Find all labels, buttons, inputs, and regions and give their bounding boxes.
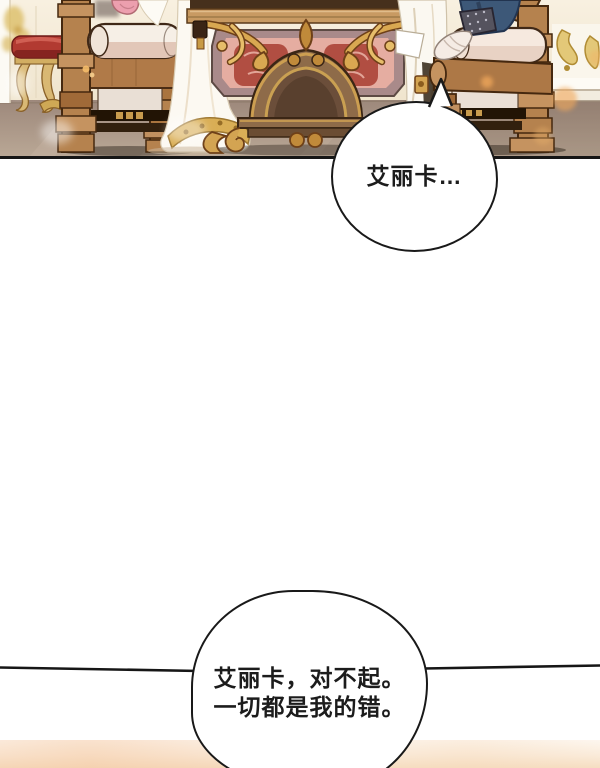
webtoon-page: 艾丽卡… 艾丽卡，对不起。 一切都是我的错。 (0, 0, 600, 768)
speech-bubble-1-text: 艾丽卡… (367, 162, 463, 191)
panel-illustration (0, 0, 600, 159)
speech-bubble-2-line2: 一切都是我的错。 (214, 693, 406, 722)
palace-scene (0, 0, 600, 156)
speech-bubble-2: 艾丽卡，对不起。 一切都是我的错。 (191, 590, 428, 768)
speech-bubble-2-line1: 艾丽卡，对不起。 (214, 664, 406, 693)
speech-bubble-1: 艾丽卡… (331, 101, 498, 252)
speech-bubble-1-tail (420, 74, 460, 112)
